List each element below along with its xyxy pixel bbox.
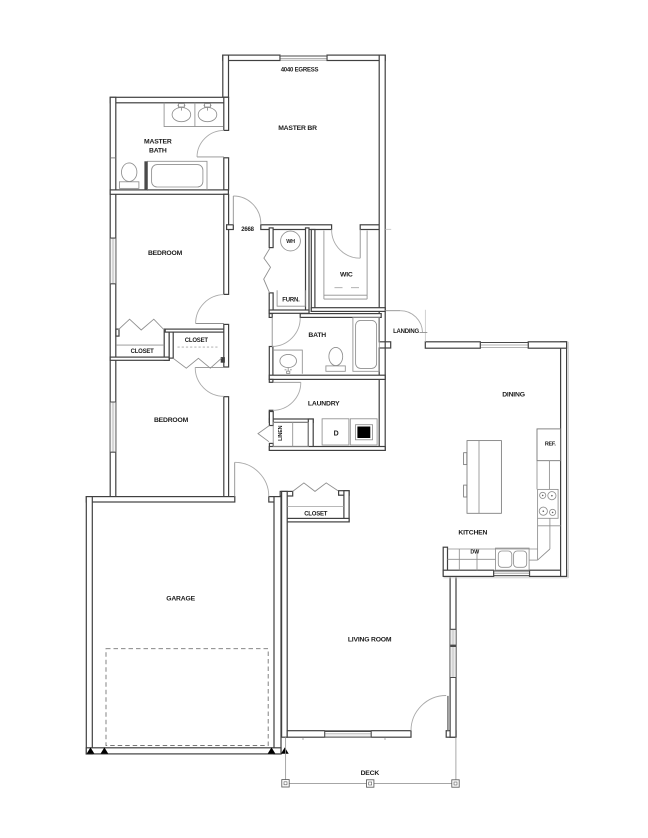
svg-text:GARAGE: GARAGE xyxy=(166,595,195,602)
svg-text:KITCHEN: KITCHEN xyxy=(458,529,487,536)
svg-text:BEDROOM: BEDROOM xyxy=(154,417,189,424)
svg-text:LANDING: LANDING xyxy=(393,329,419,335)
svg-text:CLOSET: CLOSET xyxy=(131,349,155,355)
svg-text:BATH: BATH xyxy=(149,147,167,154)
svg-text:D: D xyxy=(334,430,339,437)
svg-text:WIC: WIC xyxy=(340,271,353,278)
svg-text:MASTER: MASTER xyxy=(144,138,172,145)
svg-text:4040 EGRESS: 4040 EGRESS xyxy=(281,68,319,74)
svg-text:FURN.: FURN. xyxy=(282,297,300,303)
svg-text:MASTER BR: MASTER BR xyxy=(278,125,317,132)
svg-text:REF.: REF. xyxy=(545,441,557,447)
svg-text:DINING: DINING xyxy=(502,392,525,399)
svg-text:CLOSET: CLOSET xyxy=(304,511,328,517)
svg-text:LINEN: LINEN xyxy=(278,425,284,440)
svg-text:BATH: BATH xyxy=(308,332,326,339)
svg-text:DECK: DECK xyxy=(361,770,380,777)
svg-text:DW: DW xyxy=(470,549,480,555)
svg-text:LAUNDRY: LAUNDRY xyxy=(308,401,340,408)
svg-text:LIVING ROOM: LIVING ROOM xyxy=(348,637,392,644)
svg-text:WH: WH xyxy=(286,239,295,245)
svg-text:2668: 2668 xyxy=(241,227,254,233)
svg-text:BEDROOM: BEDROOM xyxy=(148,250,183,257)
svg-text:CLOSET: CLOSET xyxy=(185,338,209,344)
